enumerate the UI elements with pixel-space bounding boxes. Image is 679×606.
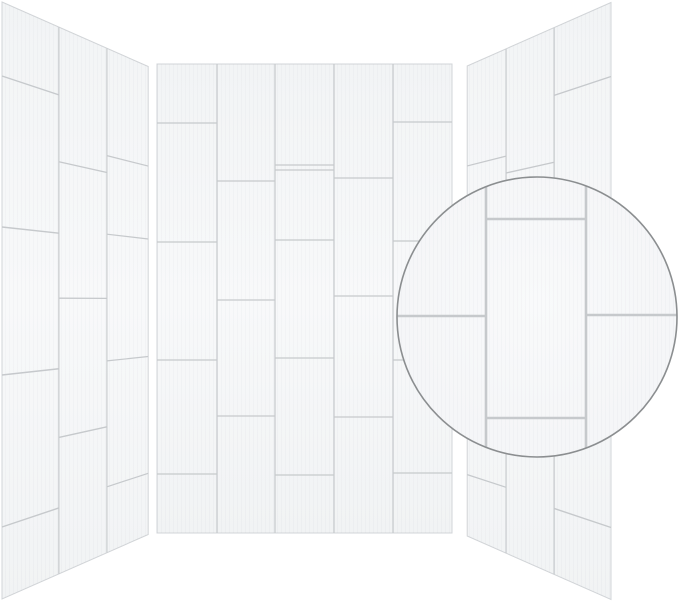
panel-texture — [2, 2, 148, 599]
scene-svg — [0, 0, 679, 606]
product-image — [0, 0, 679, 606]
left-wall-panel — [2, 2, 148, 599]
